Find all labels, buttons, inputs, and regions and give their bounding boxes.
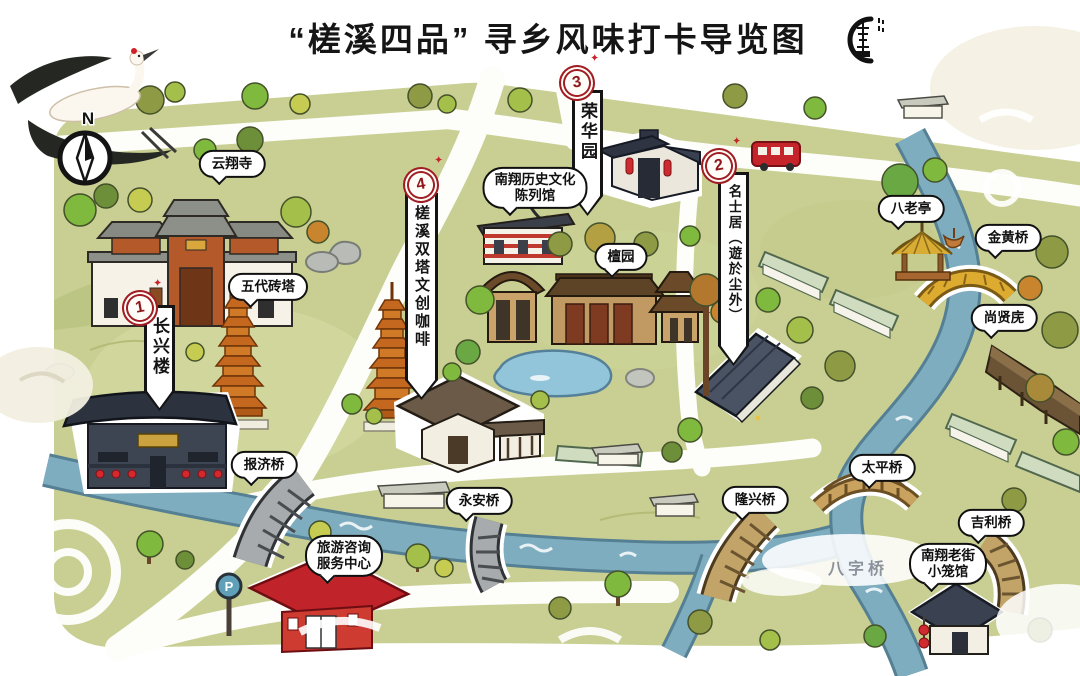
bus (752, 142, 800, 171)
banner-chaxi-coffee[interactable]: 槎溪双塔文创咖啡 (405, 193, 438, 400)
label-five-dynasties-pagoda[interactable]: 五代砖塔 (228, 273, 308, 301)
label-taiping-bridge[interactable]: 太平桥 (849, 454, 916, 482)
label-balao-pavilion[interactable]: 八老亭 (878, 195, 945, 223)
sparkle-icon: ✦ (152, 276, 162, 289)
sparkle-icon: ✦ (589, 51, 599, 64)
seal-marks (878, 18, 884, 32)
sparkle-icon: ✦ (433, 153, 443, 166)
nanxiang-pagoda-logo (840, 10, 892, 66)
small-house (592, 444, 642, 465)
map-canvas: N P “槎溪四品” 寻乡风味打卡导览图 1 ✦ 2 ✦ 3 ✦ 4 ✦ 长兴楼… (0, 0, 1080, 676)
label-visitor-center[interactable]: 旅游咨询 服务中心 (305, 535, 383, 577)
label-baoji-bridge[interactable]: 报济桥 (231, 451, 298, 479)
pond (494, 351, 611, 397)
label-shangxian-gallery[interactable]: 尚贤庑 (971, 304, 1038, 332)
small-house (650, 494, 698, 516)
label-history-museum[interactable]: 南翔历史文化 陈列馆 (483, 167, 588, 209)
pagoda-glyph (857, 22, 869, 56)
banner-mingshiju[interactable]: 名士居（遊於尘外） (718, 172, 749, 366)
label-bazi-bridge[interactable]: 八字桥 (828, 555, 888, 579)
label-tan-garden[interactable]: 檀园 (595, 243, 648, 271)
small-house (378, 482, 450, 508)
compass-n-label: N (82, 109, 94, 128)
small-house (898, 96, 948, 118)
label-yunxiang-temple[interactable]: 云翔寺 (199, 150, 266, 178)
parking-p-label: P (225, 579, 234, 594)
map-title: “槎溪四品” 寻乡风味打卡导览图 (288, 13, 807, 61)
label-yongan-bridge[interactable]: 永安桥 (446, 487, 513, 515)
sparkle-icon: ✦ (731, 134, 741, 147)
label-jinhuang-bridge[interactable]: 金黄桥 (975, 224, 1042, 252)
yongan-bridge (476, 520, 504, 586)
label-longxing-bridge[interactable]: 隆兴桥 (722, 486, 789, 514)
label-jili-bridge[interactable]: 吉利桥 (958, 509, 1025, 537)
label-xiaolong-hall[interactable]: 南翔老街 小笼馆 (909, 543, 987, 585)
